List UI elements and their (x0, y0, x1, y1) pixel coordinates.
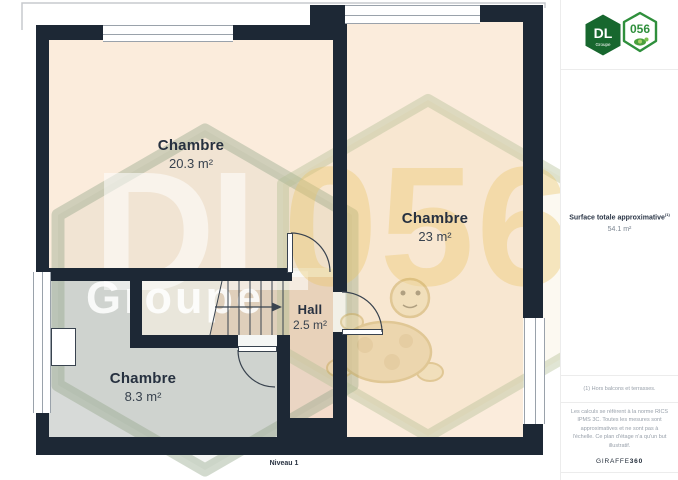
surface-total-label: Surface totale approximative(1) (569, 212, 670, 221)
room-label-bedroom-right: Chambre 23 m² (402, 210, 468, 245)
brand-suffix: 360 (630, 458, 643, 465)
wall (333, 22, 347, 292)
room-name: Chambre (158, 137, 224, 155)
logo-dl-text: DL (593, 25, 612, 41)
level-label: Niveau 1 (270, 460, 299, 467)
floorplan-canvas: DL 056 Groupe (0, 0, 560, 480)
wall (130, 335, 238, 348)
radiator (51, 328, 76, 366)
wall (310, 5, 345, 22)
logo-056-text: 056 (629, 22, 649, 36)
footnote-text: (1) Hors balcons et terrasses. (583, 386, 655, 392)
surface-note-ref: (1) (665, 212, 670, 217)
surface-total-value: 54.1 m² (608, 226, 632, 233)
wall (36, 25, 103, 40)
room-name: Chambre (110, 370, 176, 388)
logo-groupe-text: Groupe (595, 42, 611, 47)
giraffe360-brand: GIRAFFE360 (596, 457, 643, 467)
window (33, 272, 51, 413)
info-sidebar: 056 DL Groupe Surface totale approximati… (560, 0, 678, 480)
room-name: Chambre (402, 210, 468, 228)
surface-label-text: Surface totale approximative (569, 214, 665, 221)
disclaimer-text: Les calculs se réfèrent à la norme RICS … (570, 408, 669, 451)
door-leaf (287, 233, 293, 273)
dl-groupe-056-logo: 056 DL Groupe (578, 10, 662, 60)
surface-section: Surface totale approximative(1) 54.1 m² (561, 70, 678, 376)
window (103, 25, 233, 42)
wall (36, 437, 543, 455)
room-name: Hall (293, 302, 327, 318)
room-area: 8.3 m² (110, 388, 176, 405)
floorplan-page: DL 056 Groupe (0, 0, 678, 480)
room-area: 20.3 m² (158, 155, 224, 172)
room-hall-floor (290, 277, 333, 418)
wall (36, 268, 292, 281)
door-leaf (238, 346, 277, 352)
room-area: 23 m² (402, 228, 468, 245)
window (345, 5, 480, 24)
window (524, 318, 545, 424)
wall (283, 418, 347, 437)
disclaimer-section: Les calculs se réfèrent à la norme RICS … (561, 403, 678, 473)
room-label-hall: Hall 2.5 m² (293, 302, 327, 333)
room-label-bedroom-left: Chambre 20.3 m² (158, 137, 224, 172)
footnote-section: (1) Hors balcons et terrasses. (561, 376, 678, 403)
room-area: 2.5 m² (293, 318, 327, 333)
wall (36, 25, 49, 272)
door-leaf (342, 329, 383, 335)
room-label-bedroom-small: Chambre 8.3 m² (110, 370, 176, 405)
brand-name: GIRAFFE (596, 458, 630, 465)
wall (233, 25, 310, 40)
wall (523, 5, 543, 318)
stairs-corridor-floor (142, 281, 290, 335)
sidebar-empty (561, 473, 678, 479)
logo-section: 056 DL Groupe (561, 0, 678, 70)
